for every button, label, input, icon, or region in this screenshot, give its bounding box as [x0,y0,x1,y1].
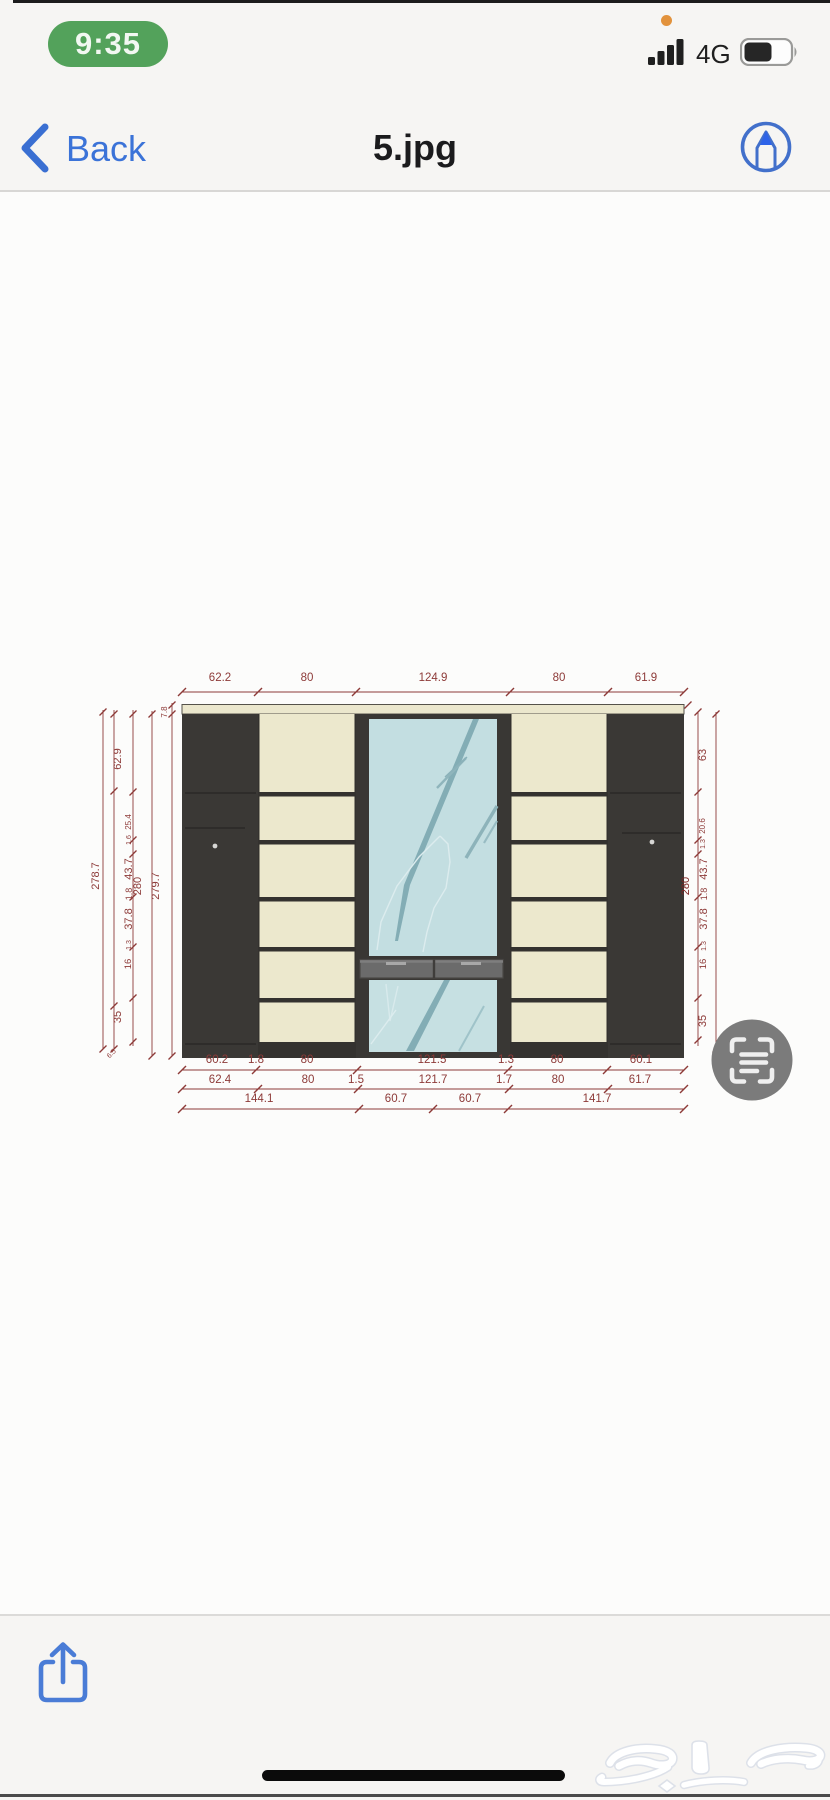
svg-text:16: 16 [123,959,134,970]
svg-text:1.6: 1.6 [126,835,133,845]
svg-text:60.7: 60.7 [385,1093,407,1105]
svg-text:278.7: 278.7 [90,862,102,890]
svg-text:35: 35 [697,1015,709,1027]
svg-text:1.3: 1.3 [498,1054,514,1066]
svg-text:60.1: 60.1 [630,1054,652,1066]
svg-text:279.7: 279.7 [150,872,162,900]
svg-text:20.6: 20.6 [698,818,707,834]
svg-text:61.7: 61.7 [629,1074,651,1086]
svg-text:1.5: 1.5 [348,1074,364,1086]
svg-text:25.4: 25.4 [124,814,133,830]
svg-text:63: 63 [697,749,709,761]
svg-text:1.3: 1.3 [701,941,708,951]
svg-text:80: 80 [552,1074,565,1086]
svg-text:43.7: 43.7 [123,858,135,879]
svg-text:280: 280 [132,877,144,895]
svg-text:80: 80 [301,1054,314,1066]
svg-text:280: 280 [680,877,692,895]
svg-text:16: 16 [698,959,709,970]
svg-text:37.8: 37.8 [123,908,135,929]
svg-text:61.9: 61.9 [635,672,657,684]
svg-text:144.1: 144.1 [245,1093,274,1105]
svg-text:6.5: 6.5 [106,1048,118,1060]
svg-text:124.9: 124.9 [419,672,448,684]
svg-text:62.2: 62.2 [209,672,231,684]
svg-text:43.7: 43.7 [698,858,710,879]
svg-text:60.2: 60.2 [206,1054,228,1066]
svg-text:7.8: 7.8 [160,706,169,718]
svg-text:1.8: 1.8 [248,1054,264,1066]
svg-text:1.3: 1.3 [126,940,133,950]
svg-text:62.4: 62.4 [209,1074,232,1086]
svg-text:121.5: 121.5 [418,1054,447,1066]
svg-text:121.7: 121.7 [419,1074,448,1086]
svg-text:1.3: 1.3 [700,839,707,849]
svg-text:35: 35 [112,1011,124,1023]
svg-text:62.9: 62.9 [112,748,124,769]
svg-text:80: 80 [301,672,314,684]
svg-text:1.7: 1.7 [496,1074,512,1086]
svg-text:80: 80 [302,1074,315,1086]
svg-text:80: 80 [553,672,566,684]
svg-text:80: 80 [551,1054,564,1066]
svg-text:141.7: 141.7 [583,1093,612,1105]
svg-text:60.7: 60.7 [459,1093,481,1105]
svg-text:1.8: 1.8 [699,888,709,901]
svg-text:37.8: 37.8 [698,908,710,929]
